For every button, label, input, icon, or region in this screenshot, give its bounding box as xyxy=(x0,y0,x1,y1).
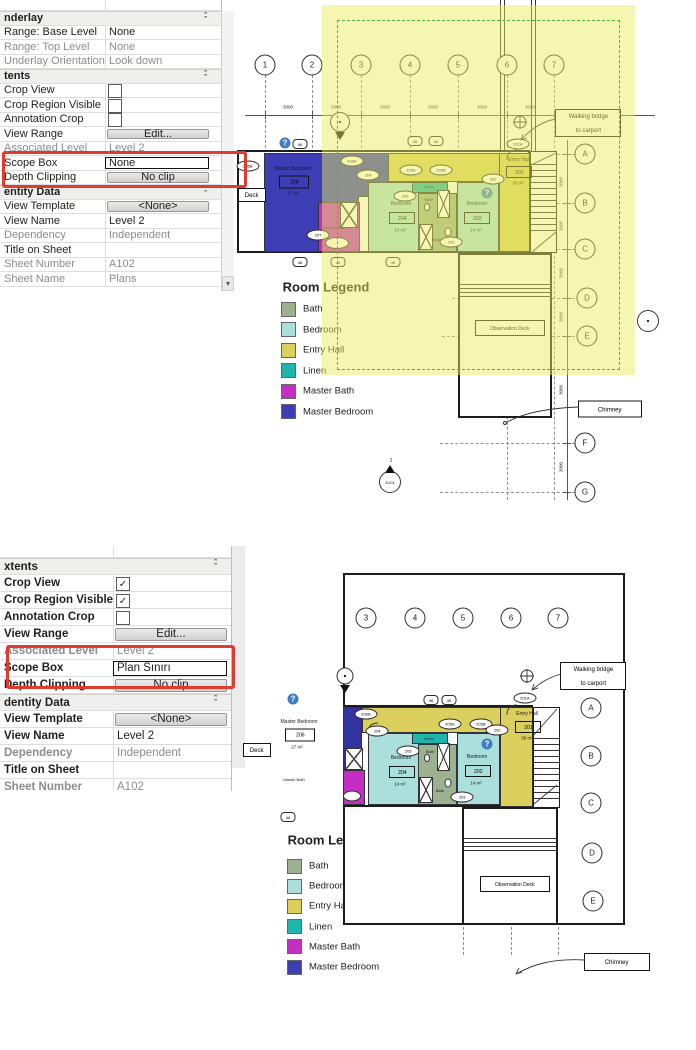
door-tag: 203 xyxy=(451,792,474,803)
annotation-text: Linen xyxy=(424,737,434,741)
legend-label: Bath xyxy=(309,861,329,872)
property-label: Annotation Crop xyxy=(4,609,95,625)
room-tag: 201 xyxy=(515,721,541,733)
annotation-text: 201 xyxy=(524,724,532,730)
grid-bubble: 3 xyxy=(356,608,377,629)
annotation-box: Walking bridgeto carport xyxy=(560,662,626,690)
grid-bubble: 7 xyxy=(548,608,569,629)
annotation-box: Chimney xyxy=(584,953,650,971)
marker-dot xyxy=(344,675,346,677)
property-label: Sheet Name xyxy=(4,272,65,286)
property-value: None xyxy=(105,26,221,40)
fixture-symbol xyxy=(503,421,507,425)
legend-swatch xyxy=(281,302,296,317)
section-arrow-icon xyxy=(385,465,395,473)
annotation-text: 14 m² xyxy=(394,782,406,787)
property-row: Crop Region Visible✓ xyxy=(0,592,231,609)
property-row: DependencyIndependent xyxy=(0,745,231,762)
annotation-text: Master Bedroom xyxy=(275,167,312,172)
door-tag: 204 xyxy=(366,726,389,737)
annotation-text: 46 xyxy=(298,142,302,147)
property-value xyxy=(113,762,231,778)
annotation-text: 202 xyxy=(474,768,482,774)
line xyxy=(563,492,571,493)
annotation-text: 207 xyxy=(315,233,322,238)
property-value: A102 xyxy=(113,779,231,791)
property-label: Annotation Crop xyxy=(4,113,84,127)
grid-bubble: E xyxy=(583,891,604,912)
property-label: View Name xyxy=(4,728,65,744)
grid-bubble: F xyxy=(575,433,596,454)
line xyxy=(462,842,558,843)
annotation-box: Observation Deck xyxy=(480,876,550,892)
marker-arrow-icon xyxy=(340,685,350,693)
collapse-icon: ˆˆ xyxy=(214,698,217,705)
property-row: View RangeEdit... xyxy=(0,626,231,643)
grid-bubble-label: C xyxy=(588,799,594,808)
annotation-text: 206 xyxy=(290,179,298,185)
property-row: Underlay OrientationLook down xyxy=(0,55,221,70)
grid-bubble-label: 6 xyxy=(509,614,513,623)
annotation-text: 204 xyxy=(374,729,381,734)
grid-bubble-label: G xyxy=(582,488,588,497)
property-row: Annotation Crop xyxy=(0,609,231,626)
property-row: Title on Sheet xyxy=(0,243,221,258)
property-label: View Template xyxy=(4,200,75,214)
grid-bubble-label: D xyxy=(589,849,595,858)
annotation-text: 202 xyxy=(494,728,501,733)
annotation-text: Walking bridge xyxy=(573,666,612,673)
property-value: Plans xyxy=(105,272,221,286)
property-button[interactable]: <None> xyxy=(115,713,227,726)
property-row xyxy=(0,0,221,11)
annotation-box: Deck xyxy=(243,743,271,757)
annotation-box: Deck xyxy=(238,188,266,202)
grid-bubble-label: B xyxy=(588,752,593,761)
scope-box-boundary xyxy=(337,20,620,370)
collapse-icon: ˆˆ xyxy=(214,562,217,569)
property-row: Sheet NumberA102 xyxy=(0,258,221,273)
line xyxy=(265,111,266,119)
casework-symbol xyxy=(419,777,433,803)
property-value xyxy=(105,84,221,98)
scroll-down-icon[interactable]: ▾ xyxy=(222,276,234,291)
property-label: Crop Region Visible xyxy=(4,98,101,112)
door-tag: 201A xyxy=(514,693,537,704)
collapse-icon: ˆˆ xyxy=(204,15,207,22)
line xyxy=(563,443,571,444)
property-group-header: dentity Dataˆˆ xyxy=(0,694,231,711)
property-row: Title on Sheet xyxy=(0,762,231,779)
property-row: View NameLevel 2 xyxy=(0,214,221,229)
grid-bubble-label: 5 xyxy=(461,614,465,623)
property-label: Dependency xyxy=(4,745,72,761)
casework-symbol xyxy=(437,743,450,771)
annotation-text: 201A xyxy=(520,696,529,701)
help-icon[interactable]: ? xyxy=(280,138,291,149)
annotation-text: 206A xyxy=(361,712,370,717)
annotation-text: Chimney xyxy=(605,959,629,966)
property-value xyxy=(105,113,221,127)
annotation-text: Master Bath xyxy=(283,778,305,782)
grid-bubble: 1 xyxy=(255,55,276,76)
annotation-text: 46 xyxy=(429,698,433,703)
annotation-text: 205B xyxy=(476,722,485,727)
property-label: Range: Base Level xyxy=(4,26,97,40)
annotation-box: Chimney xyxy=(578,401,642,418)
legend-label: Linen xyxy=(309,921,332,932)
grid-bubble: 6 xyxy=(501,608,522,629)
grid-bubble-label: E xyxy=(590,897,595,906)
annotation-text: Deck xyxy=(245,192,259,199)
room-fill xyxy=(647,320,649,322)
keynote-tag: 46 xyxy=(293,257,308,267)
line xyxy=(312,111,313,119)
property-value: None xyxy=(105,40,221,54)
property-label: Crop View xyxy=(4,84,55,98)
property-label: Dependency xyxy=(4,229,66,243)
help-icon[interactable]: ? xyxy=(288,694,299,705)
property-row: View RangeEdit... xyxy=(0,127,221,142)
annotation-text: 30 m² xyxy=(521,736,533,741)
annotation-text: 27 m² xyxy=(287,191,299,196)
property-value xyxy=(105,98,221,112)
room-tag: 206 xyxy=(285,729,315,742)
legend-label: Master Bath xyxy=(309,941,360,952)
grid-line xyxy=(440,492,575,493)
annotation-text: 46 xyxy=(447,698,451,703)
door-tag: 206A xyxy=(355,709,378,720)
legend-swatch xyxy=(287,899,302,914)
property-group-header: xtentsˆˆ xyxy=(0,558,231,575)
keynote-tag: 46 xyxy=(281,812,296,822)
annotation-text: 14 m² xyxy=(470,781,482,786)
property-label: Crop View xyxy=(4,575,60,591)
property-row: Sheet NamePlans xyxy=(0,272,221,287)
property-label: xtents xyxy=(4,559,38,574)
property-value xyxy=(113,609,231,625)
annotation-text: Chimney xyxy=(598,406,622,413)
property-label: Range: Top Level xyxy=(4,40,89,54)
annotation-text: 3000 xyxy=(559,385,564,395)
annotation-text: 46 xyxy=(298,260,302,265)
legend-label: Master Bath xyxy=(303,386,354,397)
scope-box-highlight-bottom xyxy=(6,645,235,689)
legend-label: Master Bedroom xyxy=(309,962,379,973)
grid-bubble: G xyxy=(575,482,596,503)
line xyxy=(462,846,558,847)
annotation-text: A101 xyxy=(385,481,394,485)
legend-swatch xyxy=(287,939,302,954)
property-value xyxy=(105,0,221,10)
property-row: View NameLevel 2 xyxy=(0,728,231,745)
property-button[interactable]: Edit... xyxy=(107,129,209,140)
legend-swatch xyxy=(281,363,296,378)
fixture-symbol xyxy=(521,670,534,683)
grid-bubble: 4 xyxy=(405,608,426,629)
annotation-text: 46 xyxy=(286,815,290,820)
annotation-text: Deck xyxy=(250,747,264,754)
button-label: Edit... xyxy=(156,628,185,640)
legend-label: Master Bedroom xyxy=(303,406,373,417)
grid-bubble: B xyxy=(581,746,602,767)
door-tag: 202 xyxy=(486,725,509,736)
property-row xyxy=(0,546,231,558)
legend-swatch xyxy=(281,343,296,358)
annotation-text: 203 xyxy=(459,795,466,800)
properties-panel-top: nderlayˆˆRange: Base LevelNoneRange: Top… xyxy=(0,0,222,291)
annotation-text: Bath xyxy=(426,750,434,754)
property-label: Title on Sheet xyxy=(4,243,71,257)
property-row: Crop Region Visible xyxy=(0,98,221,113)
property-label: Crop Region Visible xyxy=(4,592,113,608)
legend-label: Bedroom xyxy=(309,881,348,892)
annotation-text: Observation Deck xyxy=(495,881,535,887)
annotation-text: 27 m² xyxy=(291,745,303,750)
property-label: dentity Data xyxy=(4,695,70,710)
room-tag: 202 xyxy=(465,765,491,777)
button-label: <None> xyxy=(138,200,177,212)
door-tag: 205A xyxy=(439,719,462,730)
annotation-text: 205 xyxy=(405,749,412,754)
property-row: View Template<None> xyxy=(0,200,221,215)
property-label: View Range xyxy=(4,127,63,141)
button-label: <None> xyxy=(151,713,192,725)
property-row: Annotation Crop xyxy=(0,113,221,128)
keynote-tag: 46 xyxy=(442,695,457,705)
legend-label: Bath xyxy=(303,304,323,315)
legend-swatch xyxy=(287,879,302,894)
annotation-text: 205A xyxy=(445,722,454,727)
button-label: Edit... xyxy=(144,128,172,140)
annotation-text: 204 xyxy=(398,769,406,775)
annotation-text: Entry Hall xyxy=(516,712,538,717)
grid-bubble-label: 7 xyxy=(556,614,560,623)
property-value: Look down xyxy=(105,55,221,69)
grid-bubble: C xyxy=(581,793,602,814)
grid-bubble-label: 4 xyxy=(413,614,417,623)
legend-swatch xyxy=(287,960,302,975)
annotation-text: 3000 xyxy=(283,105,293,110)
grid-bubble-label: 1 xyxy=(263,61,267,70)
annotation-text: Bedroom xyxy=(467,755,487,760)
property-row: Sheet NumberA102 xyxy=(0,779,231,791)
annotation-text: to carport xyxy=(580,680,605,687)
fixture-symbol xyxy=(445,779,452,788)
property-row: Range: Top LevelNone xyxy=(0,40,221,55)
fixture-symbol xyxy=(424,754,430,762)
annotation-text: 3000 xyxy=(559,462,564,472)
room-tag: 206 xyxy=(279,176,309,189)
property-value xyxy=(113,546,231,557)
grid-line xyxy=(440,443,575,444)
property-value: Independent xyxy=(105,229,221,243)
door-tag: 205 xyxy=(397,746,420,757)
property-group-header: tentsˆˆ xyxy=(0,69,221,84)
property-label: View Name xyxy=(4,214,60,228)
property-label: tents xyxy=(4,70,30,83)
property-button[interactable]: Edit... xyxy=(115,628,227,641)
property-label: Underlay Orientation xyxy=(4,55,105,69)
line xyxy=(462,838,558,839)
stair-treads xyxy=(534,738,559,803)
property-value xyxy=(113,592,231,608)
legend-swatch xyxy=(287,919,302,934)
outline-rect xyxy=(462,807,558,925)
legend-swatch xyxy=(287,859,302,874)
grid-bubble: 5 xyxy=(453,608,474,629)
casework-symbol xyxy=(345,748,363,770)
property-button[interactable]: <None> xyxy=(107,201,209,212)
keynote-tag: 46 xyxy=(293,139,308,149)
annotation-text: Master Bedroom xyxy=(281,720,318,725)
grid-bubble-label: 3 xyxy=(364,614,368,623)
property-row: Crop View xyxy=(0,84,221,99)
property-value xyxy=(105,243,221,257)
legend-swatch xyxy=(281,322,296,337)
property-group-header: nderlayˆˆ xyxy=(0,11,221,26)
keynote-tag: 46 xyxy=(424,695,439,705)
property-label: View Range xyxy=(4,626,68,642)
screenshot-root: nderlayˆˆRange: Base LevelNoneRange: Top… xyxy=(0,0,696,1050)
property-value: Level 2 xyxy=(113,728,231,744)
property-value xyxy=(113,575,231,591)
property-row: Range: Base LevelNone xyxy=(0,26,221,41)
property-label: Sheet Number xyxy=(4,258,75,272)
collapse-icon: ˆˆ xyxy=(204,73,207,80)
property-value: Independent xyxy=(113,745,231,761)
grid-bubble: D xyxy=(582,843,603,864)
help-icon[interactable]: ? xyxy=(482,739,493,750)
property-row: Crop View✓ xyxy=(0,575,231,592)
property-label: Title on Sheet xyxy=(4,762,79,778)
property-value: Level 2 xyxy=(105,214,221,228)
property-row: DependencyIndependent xyxy=(0,229,221,244)
annotation-text: 1 xyxy=(390,459,393,464)
legend-swatch xyxy=(281,404,296,419)
property-value: A102 xyxy=(105,258,221,272)
collapse-icon: ˆˆ xyxy=(204,189,207,196)
legend-swatch xyxy=(281,384,296,399)
grid-bubble-label: 2 xyxy=(310,61,314,70)
grid-bubble: 2 xyxy=(302,55,323,76)
room-tag: 204 xyxy=(389,766,415,778)
grid-bubble: A xyxy=(581,698,602,719)
property-label: Sheet Number xyxy=(4,779,82,791)
grid-bubble-label: A xyxy=(588,704,593,713)
fixture-symbol xyxy=(343,791,361,802)
annotation-text: 206 xyxy=(296,732,304,738)
grid-bubble-label: F xyxy=(583,439,588,448)
property-label: View Template xyxy=(4,711,83,727)
property-label: nderlay xyxy=(4,12,43,25)
annotation-text: Bath xyxy=(436,789,444,793)
scope-box-highlight-top xyxy=(2,151,247,188)
line xyxy=(462,850,558,851)
property-row: View Template<None> xyxy=(0,711,231,728)
